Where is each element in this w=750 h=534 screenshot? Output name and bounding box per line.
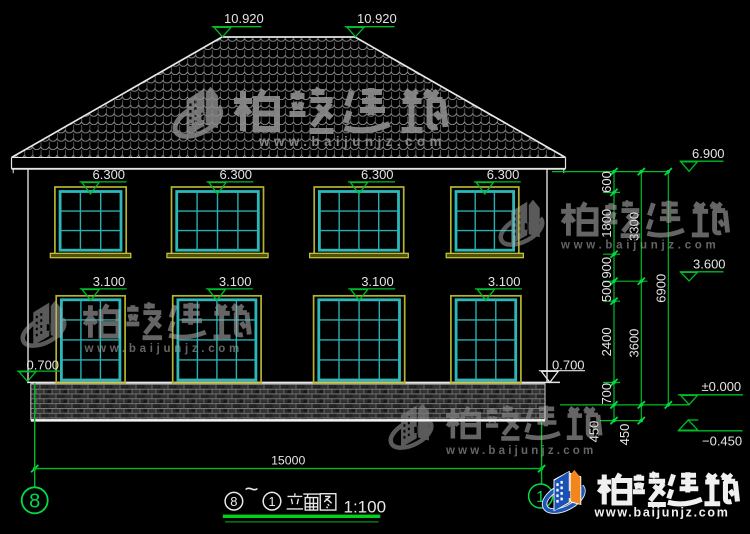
- svg-text:6.300: 6.300: [487, 167, 520, 182]
- svg-text:0.700: 0.700: [27, 357, 60, 372]
- svg-text:www.baijunjz.com: www.baijunjz.com: [445, 445, 596, 457]
- svg-text:8: 8: [230, 494, 237, 509]
- svg-text:3.100: 3.100: [219, 274, 252, 289]
- svg-text:www.baijunjz.com: www.baijunjz.com: [594, 506, 730, 520]
- svg-text:3.600: 3.600: [693, 256, 726, 271]
- svg-text:6.900: 6.900: [692, 146, 725, 161]
- svg-text:10.920: 10.920: [224, 11, 264, 26]
- svg-text:−0.450: −0.450: [702, 434, 742, 449]
- svg-text:500: 500: [599, 280, 614, 302]
- svg-text:3.100: 3.100: [488, 274, 521, 289]
- svg-text:900: 900: [599, 257, 614, 279]
- svg-text:2400: 2400: [599, 327, 614, 356]
- svg-text:3.100: 3.100: [93, 274, 126, 289]
- svg-text:1:100: 1:100: [344, 498, 387, 517]
- svg-text:3600: 3600: [627, 329, 642, 358]
- svg-text:700: 700: [599, 383, 614, 405]
- svg-text:www.baijunjz.com: www.baijunjz.com: [560, 240, 719, 252]
- svg-text:6900: 6900: [653, 274, 668, 303]
- svg-text:www.baijunjz.com: www.baijunjz.com: [258, 134, 446, 149]
- svg-text:6.300: 6.300: [361, 167, 394, 182]
- svg-text:1: 1: [268, 494, 275, 509]
- svg-text:8: 8: [29, 490, 40, 512]
- svg-text:6.300: 6.300: [220, 167, 253, 182]
- svg-text:10.920: 10.920: [357, 11, 397, 26]
- svg-text:±0.000: ±0.000: [702, 379, 742, 394]
- svg-text:15000: 15000: [271, 453, 305, 467]
- svg-text:450: 450: [617, 424, 632, 446]
- svg-text:www.baijunjz.com: www.baijunjz.com: [84, 343, 243, 355]
- svg-text:600: 600: [599, 171, 614, 193]
- svg-text:3.100: 3.100: [361, 274, 394, 289]
- svg-text:6.300: 6.300: [93, 167, 126, 182]
- svg-text:~: ~: [244, 476, 258, 503]
- svg-text:0.700: 0.700: [552, 357, 585, 372]
